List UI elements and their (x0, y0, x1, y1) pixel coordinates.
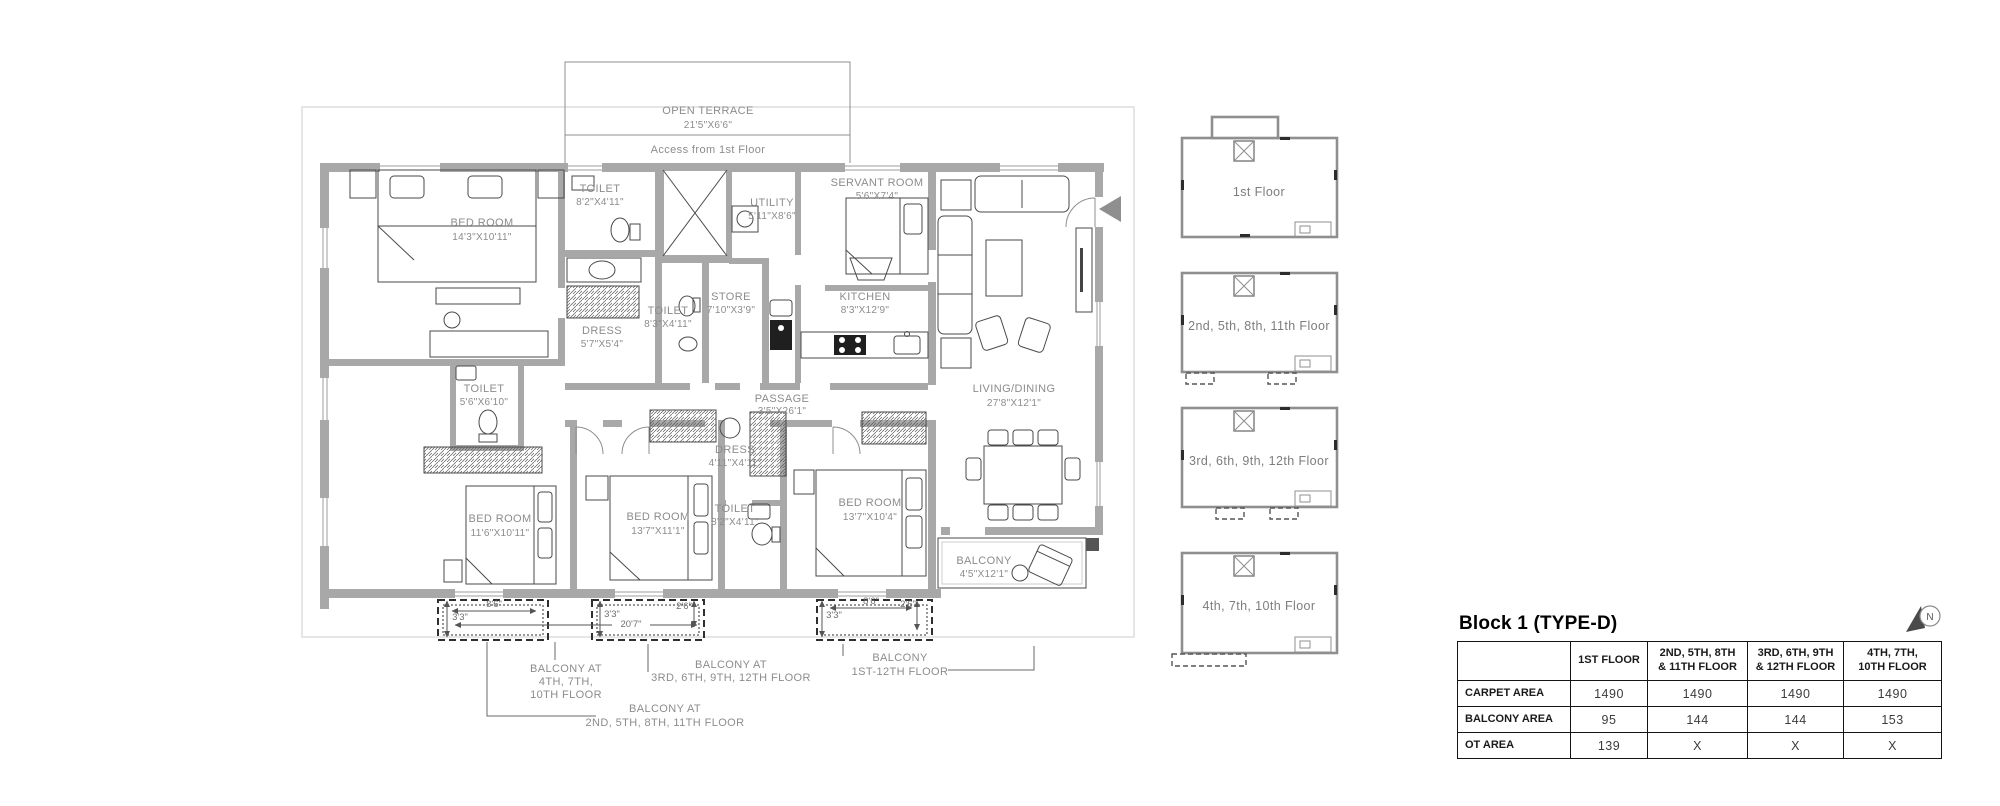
living-dining-label: LIVING/DINING (973, 383, 1056, 395)
bedroom3-label: BED ROOM (626, 511, 689, 523)
key-plan-4-label: 4th, 7th, 10th Floor (1203, 599, 1316, 613)
kitchen-label: KITCHEN (839, 291, 890, 303)
bedroom1-label: BED ROOM (450, 217, 513, 229)
dim-b3-width: 8'6" (863, 596, 879, 607)
balcony-value: 144 (1648, 707, 1748, 733)
terrace-label: OPEN TERRACE (662, 105, 753, 117)
key-plan-3-label: 3rd, 6th, 9th, 12th Floor (1189, 454, 1329, 468)
svg-text:5'11"X8'6": 5'11"X8'6" (748, 211, 796, 222)
elevator-shaft (661, 168, 729, 258)
key-plan-2nd-floors: 2nd, 5th, 8th, 11th Floor (1181, 272, 1337, 384)
ot-value: 139 (1571, 733, 1648, 759)
table-title: Block 1 (TYPE-D) (1459, 613, 1941, 635)
svg-text:13'7"X10'4": 13'7"X10'4" (843, 512, 897, 523)
area-table-grid: 1ST FLOOR 2ND, 5TH, 8TH & 11TH FLOOR 3RD… (1457, 641, 1942, 759)
dim-b3-depth: 3'3" (826, 610, 842, 621)
svg-text:4'5"X12'1": 4'5"X12'1" (960, 569, 1009, 580)
row-label-balcony: BALCONY AREA (1458, 707, 1571, 733)
store-label: STORE (711, 291, 751, 303)
row-label-carpet: CARPET AREA (1458, 681, 1571, 707)
svg-text:1ST-12TH FLOOR: 1ST-12TH FLOOR (852, 666, 949, 678)
svg-text:2ND, 5TH, 8TH, 11TH FLOOR: 2ND, 5TH, 8TH, 11TH FLOOR (586, 717, 745, 729)
servant-room-label: SERVANT ROOM (831, 177, 924, 189)
room-labels: BED ROOM 14'3"X10'11" TOILET 8'2"X4'11" … (450, 177, 1055, 580)
bedroom2-label: BED ROOM (468, 513, 531, 525)
svg-text:5'6"X6'10": 5'6"X6'10" (460, 397, 509, 408)
open-terrace: OPEN TERRACE 21'5"X6'6" Access from 1st … (565, 62, 850, 163)
key-plan-4th-floors: 4th, 7th, 10th Floor (1172, 552, 1337, 666)
bedroom4-label: BED ROOM (838, 497, 901, 509)
key-plan-1-label: 1st Floor (1233, 185, 1285, 199)
dim-b2-width: 20'7" (620, 619, 641, 630)
key-plan-3rd-floors: 3rd, 6th, 9th, 12th Floor (1181, 407, 1337, 519)
carpet-value: 1490 (1648, 681, 1748, 707)
toilet-mid-label: TOILET (648, 305, 689, 317)
dress2-label: DRESS (715, 444, 755, 456)
svg-text:11'6"X10'11": 11'6"X10'11" (471, 528, 530, 539)
dim-b1-width: 8'6" (486, 599, 502, 610)
ot-value: X (1748, 733, 1844, 759)
toilet-left-label: TOILET (464, 383, 505, 395)
ot-value: X (1648, 733, 1748, 759)
access-note: Access from 1st Floor (651, 144, 766, 156)
balcony-value: 153 (1844, 707, 1942, 733)
col-header-3rd: 3RD, 6TH, 9TH & 12TH FLOOR (1748, 642, 1844, 681)
note3: BALCONY AT (629, 703, 701, 715)
balcony-value: 95 (1571, 707, 1648, 733)
dim-b1-depth: 3'3" (452, 612, 468, 623)
utility-label: UTILITY (750, 197, 794, 209)
key-plan-1st-floor: 1st Floor (1181, 117, 1337, 237)
dress1-label: DRESS (582, 325, 622, 337)
dim-b3-end: 2'6" (900, 599, 916, 610)
table-row: CARPET AREA 1490 1490 1490 1490 (1458, 681, 1942, 707)
svg-text:27'8"X12'1": 27'8"X12'1" (987, 398, 1041, 409)
note2: BALCONY AT (695, 659, 767, 671)
svg-text:8'3"X12'9": 8'3"X12'9" (841, 305, 890, 316)
terrace-size: 21'5"X6'6" (684, 120, 733, 131)
passage-label: PASSAGE (755, 393, 810, 405)
svg-text:8'2"X4'11": 8'2"X4'11" (576, 197, 624, 208)
entrance-arrow-icon (1099, 196, 1121, 222)
balcony-value: 144 (1748, 707, 1844, 733)
balcony-label: BALCONY (956, 555, 1012, 567)
svg-text:4'11"X4'11": 4'11"X4'11" (709, 458, 762, 469)
ot-value: X (1844, 733, 1942, 759)
svg-text:10TH FLOOR: 10TH FLOOR (530, 689, 602, 701)
table-row: BALCONY AREA 95 144 144 153 (1458, 707, 1942, 733)
carpet-value: 1490 (1844, 681, 1942, 707)
col-header-4th: 4TH, 7TH, 10TH FLOOR (1844, 642, 1942, 681)
svg-text:5'6"X7'4": 5'6"X7'4" (856, 191, 899, 202)
carpet-value: 1490 (1571, 681, 1648, 707)
key-plan-2-label: 2nd, 5th, 8th, 11th Floor (1188, 319, 1330, 333)
svg-text:3'5"X26'1": 3'5"X26'1" (758, 406, 807, 417)
balcony-notes: BALCONY AT 4TH, 7TH, 10TH FLOOR BALCONY … (487, 642, 1034, 729)
svg-text:8'2"X4'11": 8'2"X4'11" (711, 517, 759, 528)
svg-text:14'3"X10'11": 14'3"X10'11" (452, 232, 512, 243)
toilet-top-label: TOILET (580, 183, 621, 195)
svg-text:7'10"X3'9": 7'10"X3'9" (707, 305, 756, 316)
balcony-projections: 8'6" 3'3" 3'3" 20'7" 2'6" 8'6" 3'3" 2'6" (438, 596, 932, 640)
note1: BALCONY AT (530, 663, 602, 675)
table-row: OT AREA 139 X X X (1458, 733, 1942, 759)
note4: BALCONY (872, 652, 928, 664)
dim-b2-end: 2'6" (676, 601, 692, 612)
col-header-1st: 1ST FLOOR (1571, 642, 1648, 681)
area-table: Block 1 (TYPE-D) 1ST FLOOR 2ND, 5TH, 8TH… (1457, 613, 1941, 759)
corner-cell (1458, 642, 1571, 681)
floor-plan-sheet: OPEN TERRACE 21'5"X6'6" Access from 1st … (0, 0, 2000, 806)
svg-text:5'7"X5'4": 5'7"X5'4" (581, 339, 624, 350)
col-header-2nd: 2ND, 5TH, 8TH & 11TH FLOOR (1648, 642, 1748, 681)
row-label-ot: OT AREA (1458, 733, 1571, 759)
toilet-bottom-label: TOILET (715, 503, 756, 515)
svg-text:13'7"X11'1": 13'7"X11'1" (631, 526, 685, 537)
svg-text:4TH, 7TH,: 4TH, 7TH, (539, 676, 593, 688)
svg-text:8'3"X4'11": 8'3"X4'11" (644, 319, 692, 330)
svg-text:3RD, 6TH, 9TH, 12TH FLOOR: 3RD, 6TH, 9TH, 12TH FLOOR (651, 672, 811, 684)
carpet-value: 1490 (1748, 681, 1844, 707)
